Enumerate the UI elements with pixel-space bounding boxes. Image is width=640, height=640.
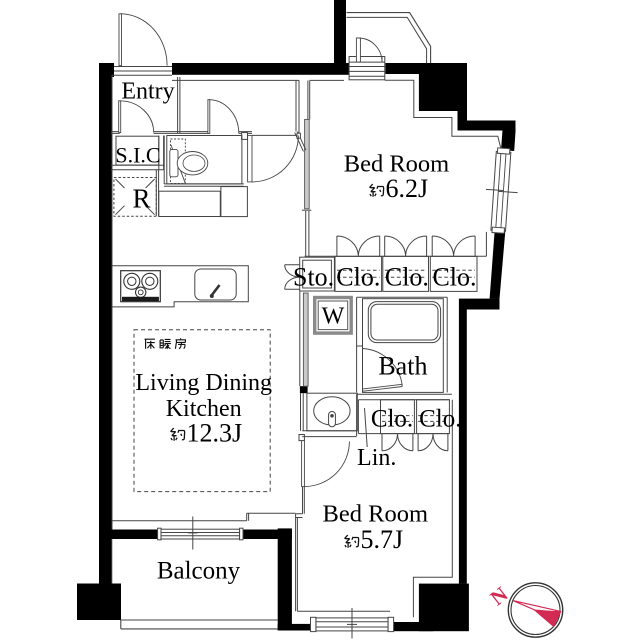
svg-text:Clo.: Clo.: [336, 262, 380, 291]
svg-text:6.2J: 6.2J: [386, 174, 429, 203]
svg-text:Bed Room: Bed Room: [323, 501, 429, 528]
svg-text:Entry: Entry: [121, 79, 174, 105]
svg-text:Living Dining: Living Dining: [135, 370, 272, 396]
svg-text:R: R: [132, 184, 150, 214]
svg-text:Clo.: Clo.: [419, 406, 461, 433]
svg-text:Sto.: Sto.: [293, 262, 334, 291]
svg-text:S.I.C: S.I.C: [115, 142, 160, 167]
svg-text:5.7J: 5.7J: [361, 525, 404, 554]
svg-text:Balcony: Balcony: [157, 558, 241, 585]
svg-text:W: W: [322, 304, 345, 330]
svg-text:Clo.: Clo.: [371, 406, 413, 433]
svg-text:Bath: Bath: [378, 352, 427, 381]
svg-text:Clo.: Clo.: [432, 262, 476, 291]
svg-text:Lin.: Lin.: [357, 445, 396, 471]
svg-text:12.3J: 12.3J: [187, 418, 243, 447]
svg-text:Clo.: Clo.: [385, 262, 429, 291]
